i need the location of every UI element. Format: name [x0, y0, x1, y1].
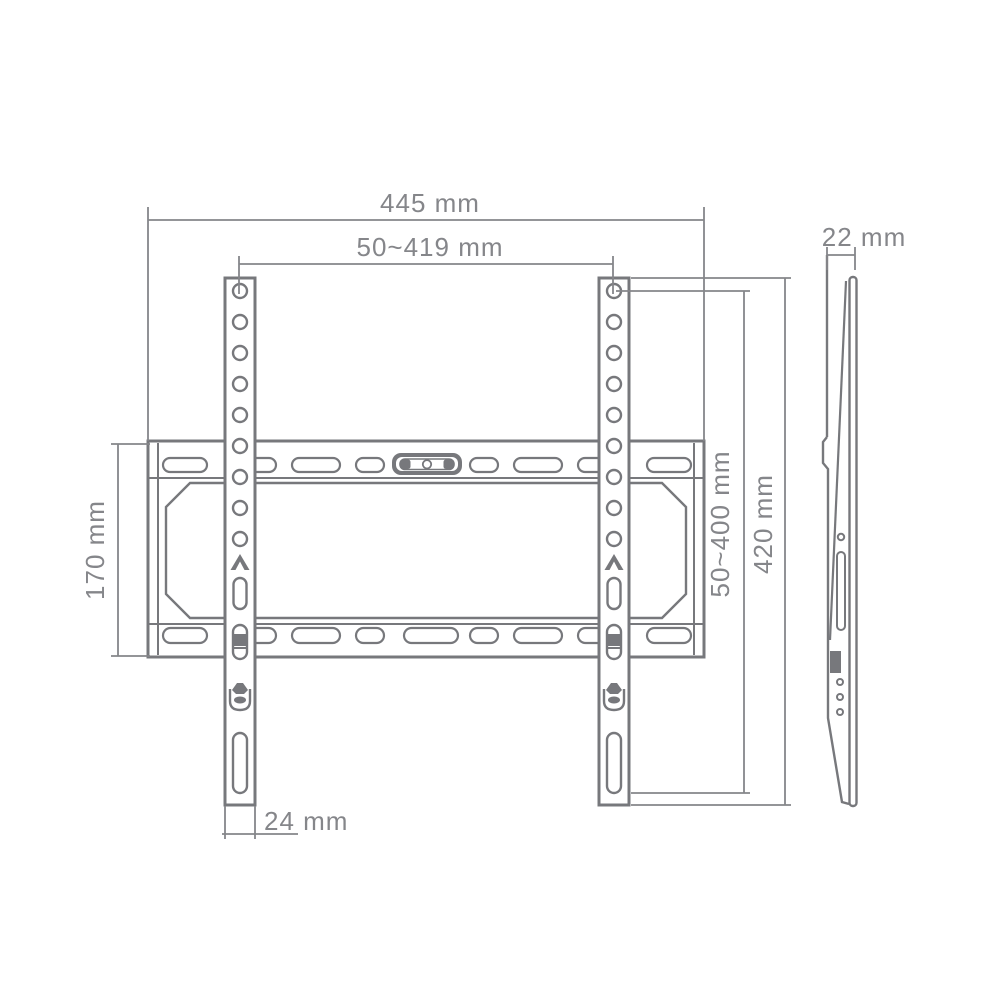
mounting-hole — [607, 408, 621, 422]
mounting-slot — [356, 628, 384, 643]
dim-depth: 22 mm — [822, 222, 906, 270]
mounting-slot — [356, 458, 384, 472]
mounting-hole — [233, 346, 247, 360]
spirit-level-icon — [392, 453, 462, 475]
hook-lock-pin — [608, 697, 620, 704]
mounting-hole — [233, 532, 247, 546]
dim-vesa-width-range: 50~419 mm — [239, 232, 613, 294]
dim-depth-label: 22 mm — [822, 222, 906, 252]
mounting-slot — [647, 458, 691, 472]
mounting-hole — [607, 532, 621, 546]
side-latch — [830, 651, 841, 673]
mounting-hole — [233, 470, 247, 484]
mounting-hole — [607, 346, 621, 360]
side-hook-bump — [823, 437, 828, 648]
left-vesa-bracket — [225, 278, 255, 805]
mounting-slot — [163, 628, 207, 643]
side-hole — [838, 534, 844, 540]
side-view — [823, 255, 857, 806]
mounting-hole — [233, 284, 247, 298]
mounting-hole — [607, 470, 621, 484]
side-slot — [837, 552, 845, 630]
dim-overall-width-label: 445 mm — [380, 188, 480, 218]
mounting-slot — [514, 458, 562, 472]
mounting-hole — [607, 315, 621, 329]
hook-lock-pin — [234, 697, 246, 704]
mounting-slot — [292, 458, 340, 472]
front-view — [148, 278, 704, 805]
mounting-hole — [607, 439, 621, 453]
side-hole — [837, 709, 843, 715]
screw-slot-slider — [234, 636, 246, 646]
mounting-slot — [163, 458, 207, 472]
mounting-hole — [233, 315, 247, 329]
dim-bracket-width-label: 24 mm — [264, 806, 348, 836]
mounting-hole — [233, 439, 247, 453]
mounting-slot — [292, 628, 340, 643]
dim-plate-height: 170 mm — [80, 444, 150, 656]
dim-plate-height-label: 170 mm — [80, 500, 110, 600]
mounting-hole — [233, 408, 247, 422]
mounting-slot — [470, 628, 498, 643]
drawing-canvas: 445 mm 50~419 mm 170 mm 50~400 mm — [0, 0, 1000, 1000]
screw-slot-slider — [608, 636, 620, 646]
side-hole — [837, 694, 843, 700]
side-strip-profile — [850, 277, 857, 806]
mounting-slot — [647, 628, 691, 643]
side-hole — [837, 679, 843, 685]
mounting-hole — [607, 501, 621, 515]
mounting-slot — [470, 458, 498, 472]
mounting-hole — [233, 377, 247, 391]
mounting-hole — [233, 501, 247, 515]
mounting-hole — [607, 377, 621, 391]
wall-mount-dimension-drawing: 445 mm 50~419 mm 170 mm 50~400 mm — [0, 0, 1000, 1000]
dim-vesa-width-label: 50~419 mm — [356, 232, 503, 262]
mounting-slot — [514, 628, 562, 643]
mounting-slot — [404, 628, 458, 643]
right-vesa-bracket — [599, 278, 629, 805]
dim-vesa-height-label: 50~400 mm — [705, 450, 735, 597]
dim-bracket-height-label: 420 mm — [748, 474, 778, 574]
dim-bracket-width: 24 mm — [222, 806, 348, 839]
